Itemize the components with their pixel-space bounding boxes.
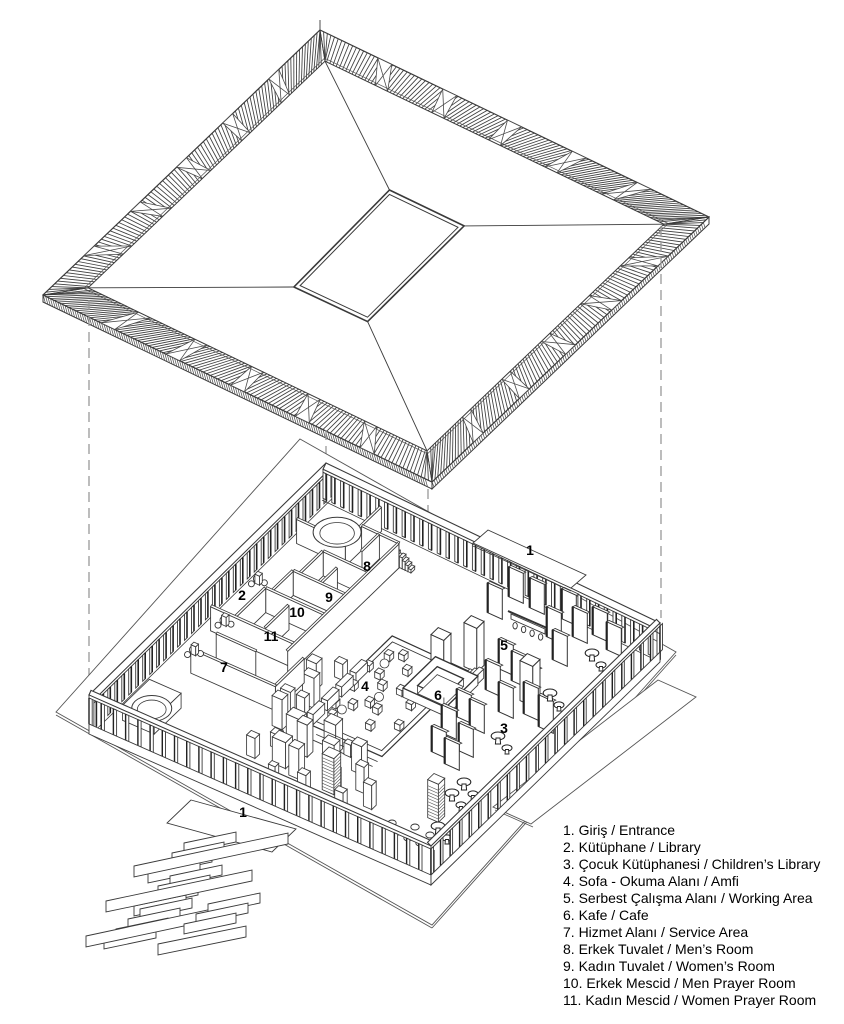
svg-text:2: 2 <box>238 587 246 603</box>
svg-text:7. Hizmet Alanı / Service Area: 7. Hizmet Alanı / Service Area <box>563 924 748 940</box>
svg-text:9: 9 <box>325 589 333 605</box>
svg-text:8: 8 <box>363 558 371 574</box>
svg-text:3: 3 <box>500 720 508 736</box>
svg-text:11. Kadın Mescid / Women Praye: 11. Kadın Mescid / Women Prayer Room <box>563 992 816 1008</box>
svg-text:1: 1 <box>526 542 534 558</box>
svg-text:2. Kütüphane / Library: 2. Kütüphane / Library <box>563 839 701 855</box>
svg-text:5: 5 <box>500 637 508 653</box>
svg-text:1: 1 <box>239 804 247 820</box>
svg-text:10. Erkek Mescid / Men Prayer: 10. Erkek Mescid / Men Prayer Room <box>563 975 796 991</box>
svg-text:10: 10 <box>289 604 305 620</box>
svg-text:6. Kafe / Cafe: 6. Kafe / Cafe <box>563 907 649 923</box>
svg-text:11: 11 <box>264 628 279 644</box>
svg-text:9. Kadın Tuvalet / Women’s Roo: 9. Kadın Tuvalet / Women’s Room <box>563 958 775 974</box>
svg-text:7: 7 <box>220 659 228 675</box>
svg-text:4: 4 <box>361 678 369 694</box>
svg-text:3. Çocuk Kütüphanesi / Childre: 3. Çocuk Kütüphanesi / Children’s Librar… <box>563 856 820 872</box>
svg-text:8. Erkek Tuvalet / Men’s Room: 8. Erkek Tuvalet / Men’s Room <box>563 941 753 957</box>
svg-text:1. Giriş / Entrance: 1. Giriş / Entrance <box>563 822 675 838</box>
svg-text:4. Sofa - Okuma Alanı / Amfi: 4. Sofa - Okuma Alanı / Amfi <box>563 873 739 889</box>
svg-text:5. Serbest Çalışma Alanı / Wor: 5. Serbest Çalışma Alanı / Working Area <box>563 890 813 906</box>
svg-text:6: 6 <box>434 687 442 703</box>
